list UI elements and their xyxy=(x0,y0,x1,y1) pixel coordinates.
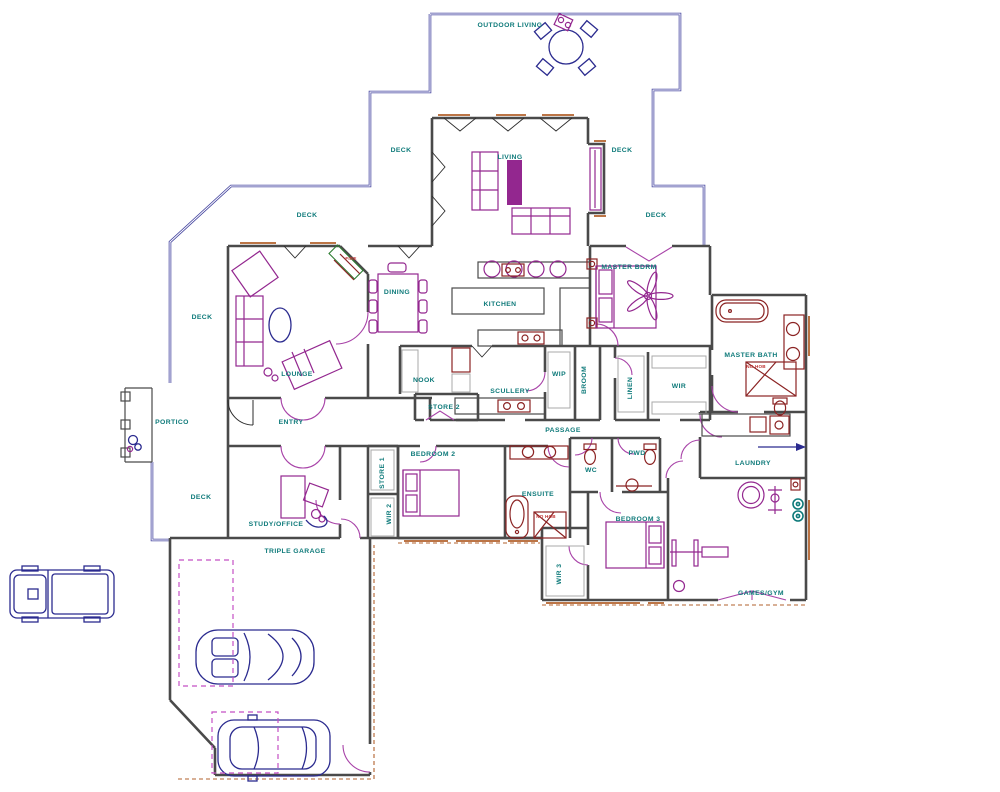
suv-car-icon xyxy=(218,715,330,781)
room-label-broom: BROOM xyxy=(581,366,588,394)
door-layer xyxy=(228,247,786,772)
room-label-living: LIVING xyxy=(497,154,522,161)
rug-icon xyxy=(507,160,522,205)
ensuite-bath-icon xyxy=(506,496,528,538)
room-label-bedroom-2: BEDROOM 2 xyxy=(411,451,456,458)
room-label-wir: WIR xyxy=(672,383,686,390)
desk-icon xyxy=(281,476,328,527)
room-label-deck: DECK xyxy=(192,314,213,321)
floor-plan-canvas: OUTDOOR LIVING DECK LIVING DECK DECK DEC… xyxy=(0,0,1000,792)
annotation-no-hob: NO HOB xyxy=(746,364,766,369)
room-label-linen: LINEN xyxy=(627,377,634,399)
lounge-sofa-icon xyxy=(232,251,342,389)
parking-bay-outline xyxy=(179,560,233,686)
room-label-lounge: LOUNGE xyxy=(281,371,313,378)
sink-icon xyxy=(518,332,544,344)
room-label-deck: DECK xyxy=(612,147,633,154)
ceiling-fan-icon xyxy=(626,271,673,321)
room-label-wir-3: WIR 3 xyxy=(556,564,563,585)
pwd-basin-icon xyxy=(616,479,652,491)
ensuite-basin-icon xyxy=(510,446,568,459)
annotation-fire: FIRE xyxy=(345,256,356,261)
window-chevron-layer xyxy=(284,118,572,357)
room-label-pwd: PWD xyxy=(628,450,645,457)
room-label-master-bdrm: MASTER BDRM xyxy=(601,264,656,271)
bbq-icon xyxy=(554,14,573,31)
annotation-no-hob: NO HOB xyxy=(536,514,556,519)
gas-bottles-icon xyxy=(793,499,803,521)
fridge-icon xyxy=(452,348,470,392)
room-label-outdoor-living: OUTDOOR LIVING xyxy=(478,22,543,29)
pickup-truck-icon xyxy=(10,566,114,622)
room-label-scullery: SCULLERY xyxy=(490,388,530,395)
room-label-deck: DECK xyxy=(646,212,667,219)
room-label-triple-garage: TRIPLE GARAGE xyxy=(264,548,325,555)
bath-icon xyxy=(716,300,768,322)
room-label-bedroom-3: BEDROOM 3 xyxy=(616,516,661,523)
convertible-car-icon xyxy=(196,630,314,684)
pendant-stools-icon xyxy=(484,261,566,277)
room-label-master-bath: MASTER BATH xyxy=(724,352,777,359)
scullery-sink-icon xyxy=(498,400,530,412)
room-label-portico: PORTICO xyxy=(155,419,189,426)
dining-table-icon xyxy=(369,263,427,333)
exercise-bike-icon xyxy=(738,482,782,514)
room-label-deck: DECK xyxy=(297,212,318,219)
kitchen-layer xyxy=(452,261,790,436)
meter-box-icon xyxy=(791,479,800,490)
room-label-games-gym: GAMES/GYM xyxy=(738,590,784,597)
room-label-wc: WC xyxy=(585,467,597,474)
media-unit-icon xyxy=(590,148,601,210)
bedroom2-bed-icon xyxy=(403,470,459,516)
gym-bench-icon xyxy=(670,540,728,592)
room-label-wir-2: WIR 2 xyxy=(386,504,393,525)
laundry-sink-icon xyxy=(750,416,789,434)
room-label-wip: WIP xyxy=(552,371,566,378)
vanity-basin-icon xyxy=(784,315,804,369)
flow-arrow-icon xyxy=(758,443,806,451)
room-labels-layer: OUTDOOR LIVING DECK LIVING DECK DECK DEC… xyxy=(155,22,784,597)
room-label-laundry: LAUNDRY xyxy=(735,460,771,467)
room-label-passage: PASSAGE xyxy=(545,427,581,434)
room-label-deck: DECK xyxy=(391,147,412,154)
room-label-kitchen: KITCHEN xyxy=(483,301,516,308)
room-label-entry: ENTRY xyxy=(279,419,304,426)
bedroom3-bed-icon xyxy=(606,522,664,568)
room-label-dining: DINING xyxy=(384,289,410,296)
parking-bay-outline xyxy=(212,712,278,773)
room-label-ensuite: ENSUITE xyxy=(522,491,554,498)
pwd-toilet-icon xyxy=(644,444,656,464)
room-label-deck: DECK xyxy=(191,494,212,501)
round-table-icon xyxy=(534,21,597,76)
floor-plan-drawing: OUTDOOR LIVING DECK LIVING DECK DECK DEC… xyxy=(0,0,1000,792)
room-label-store-2: STORE 2 xyxy=(428,404,460,411)
room-label-store-1: STORE 1 xyxy=(379,457,386,489)
deck-outline-layer xyxy=(152,14,704,540)
room-label-nook: NOOK xyxy=(413,377,435,384)
room-label-study-office: STUDY/OFFICE xyxy=(249,521,304,528)
